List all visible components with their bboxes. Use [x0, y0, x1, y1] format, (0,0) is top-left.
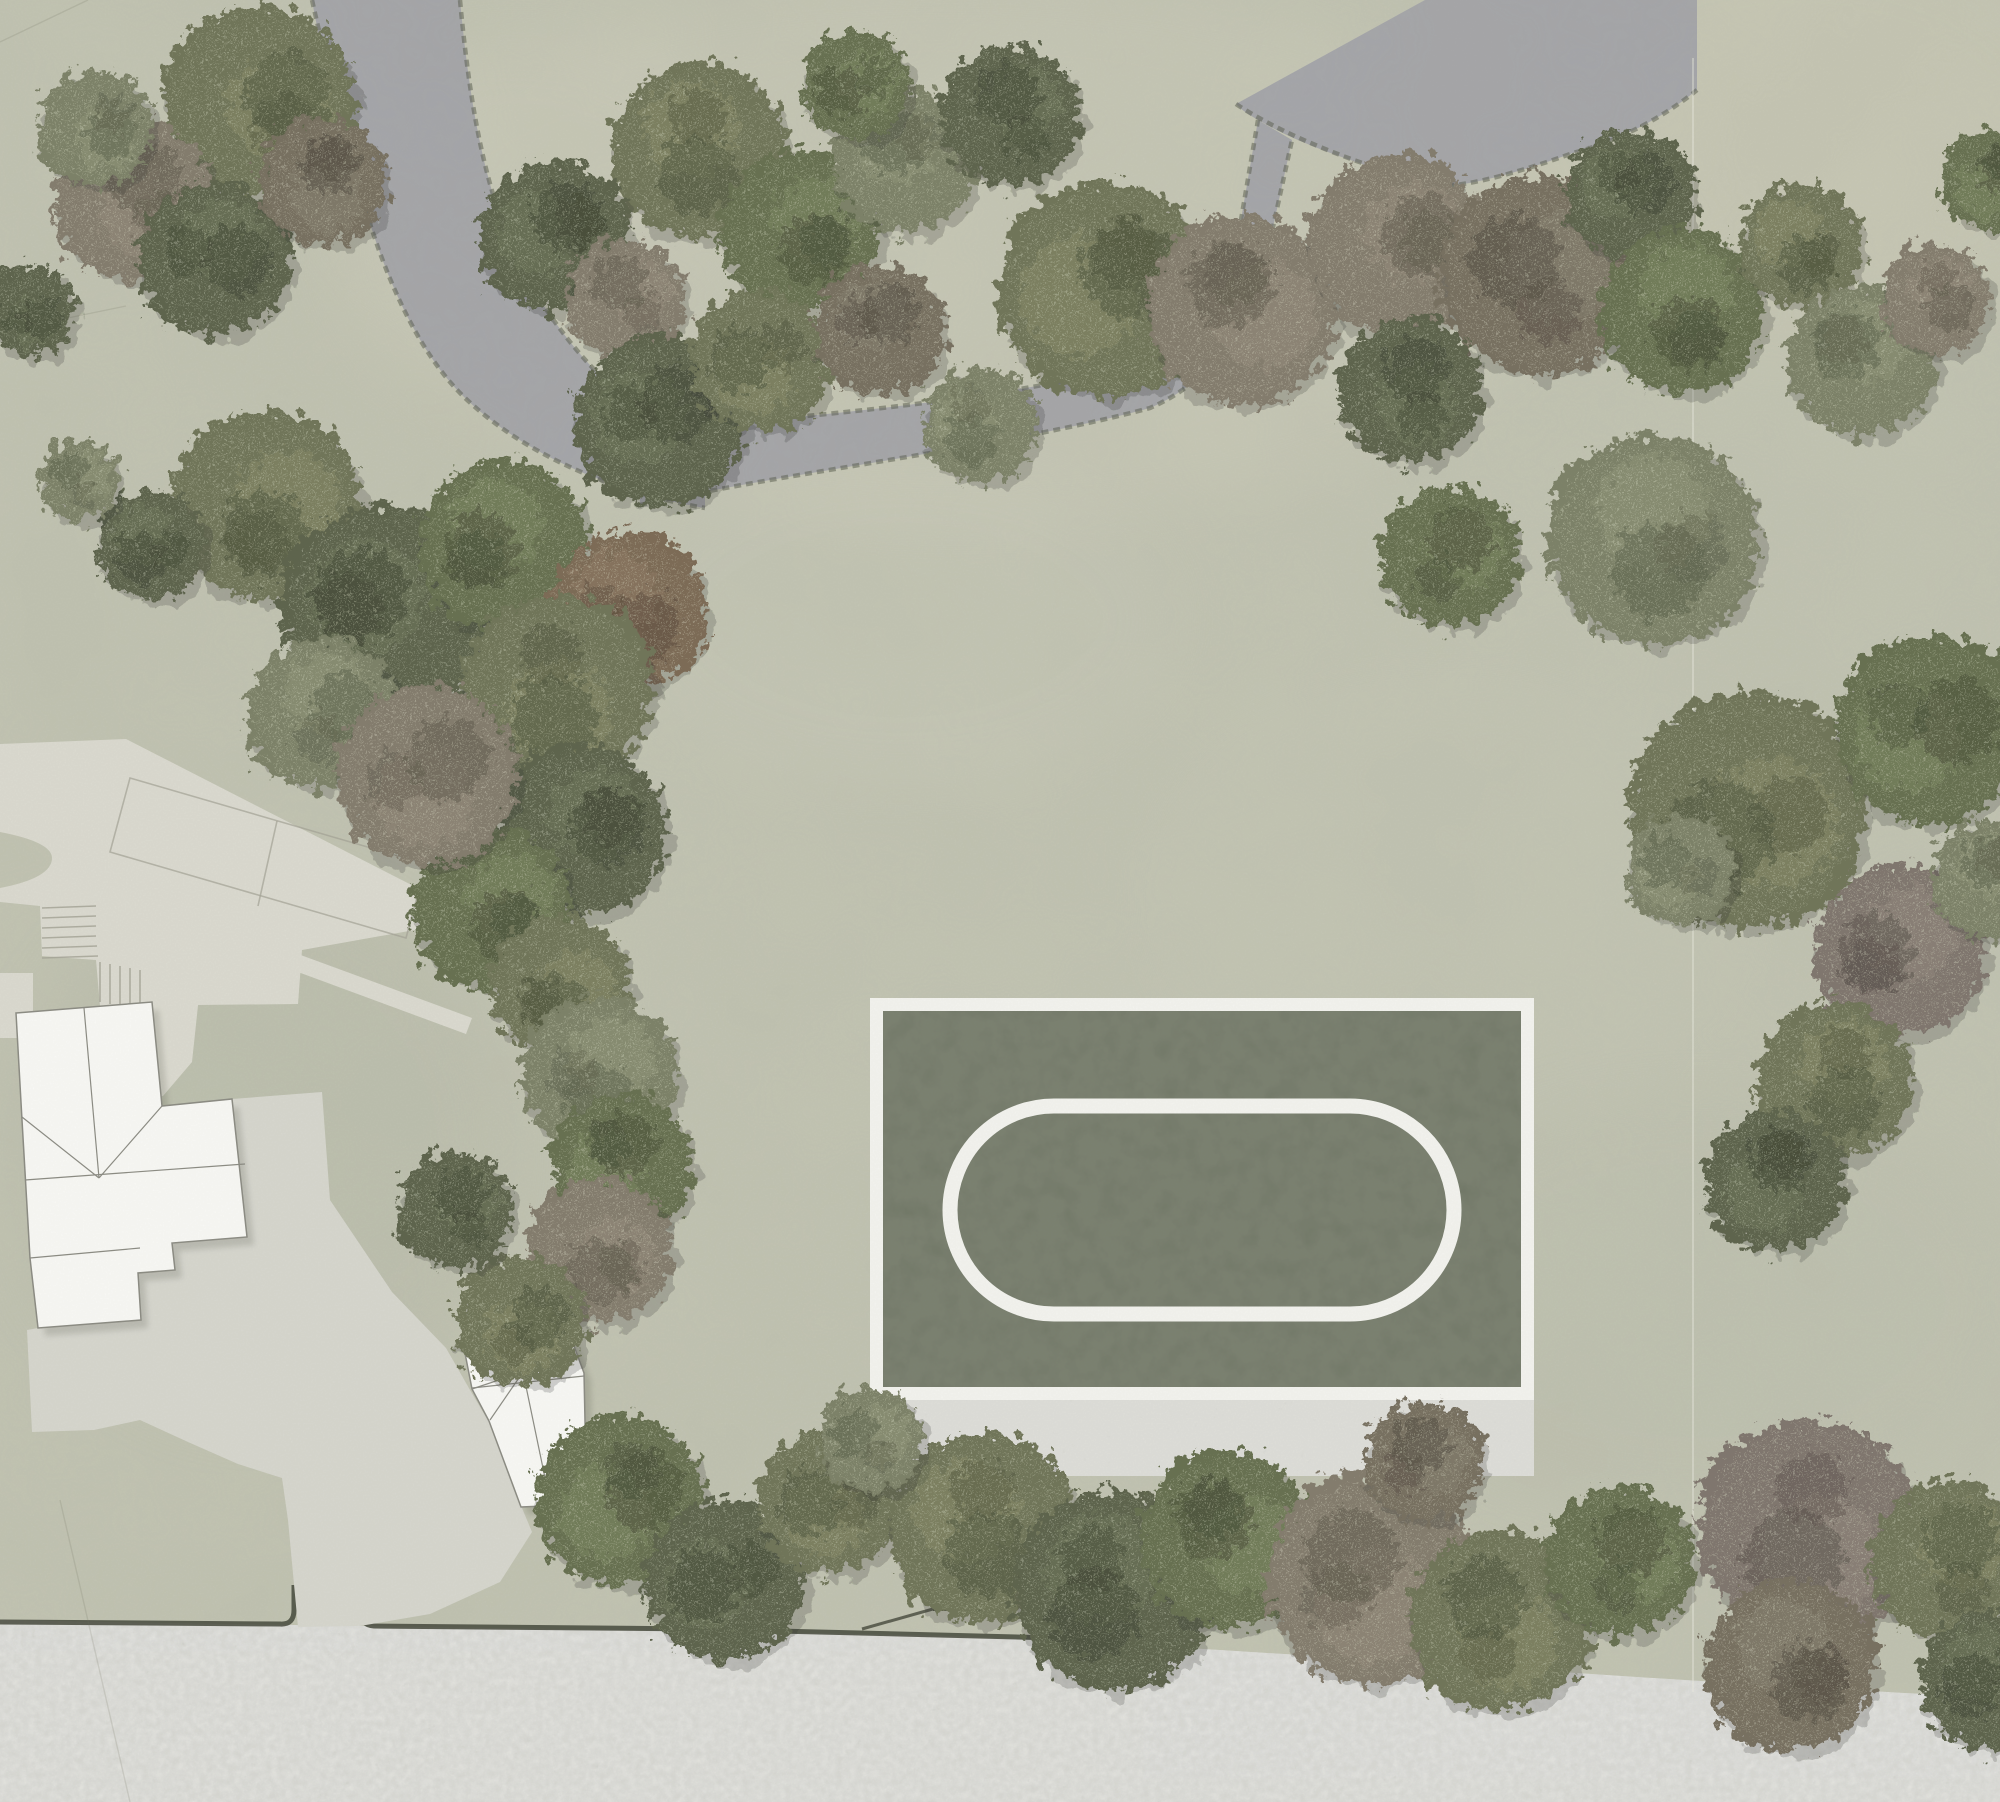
site-plan-canvas [0, 0, 2000, 1802]
grain-overlay [0, 0, 2000, 1802]
site-plan-layers [0, 0, 2000, 1802]
site-plan [0, 0, 2000, 1802]
